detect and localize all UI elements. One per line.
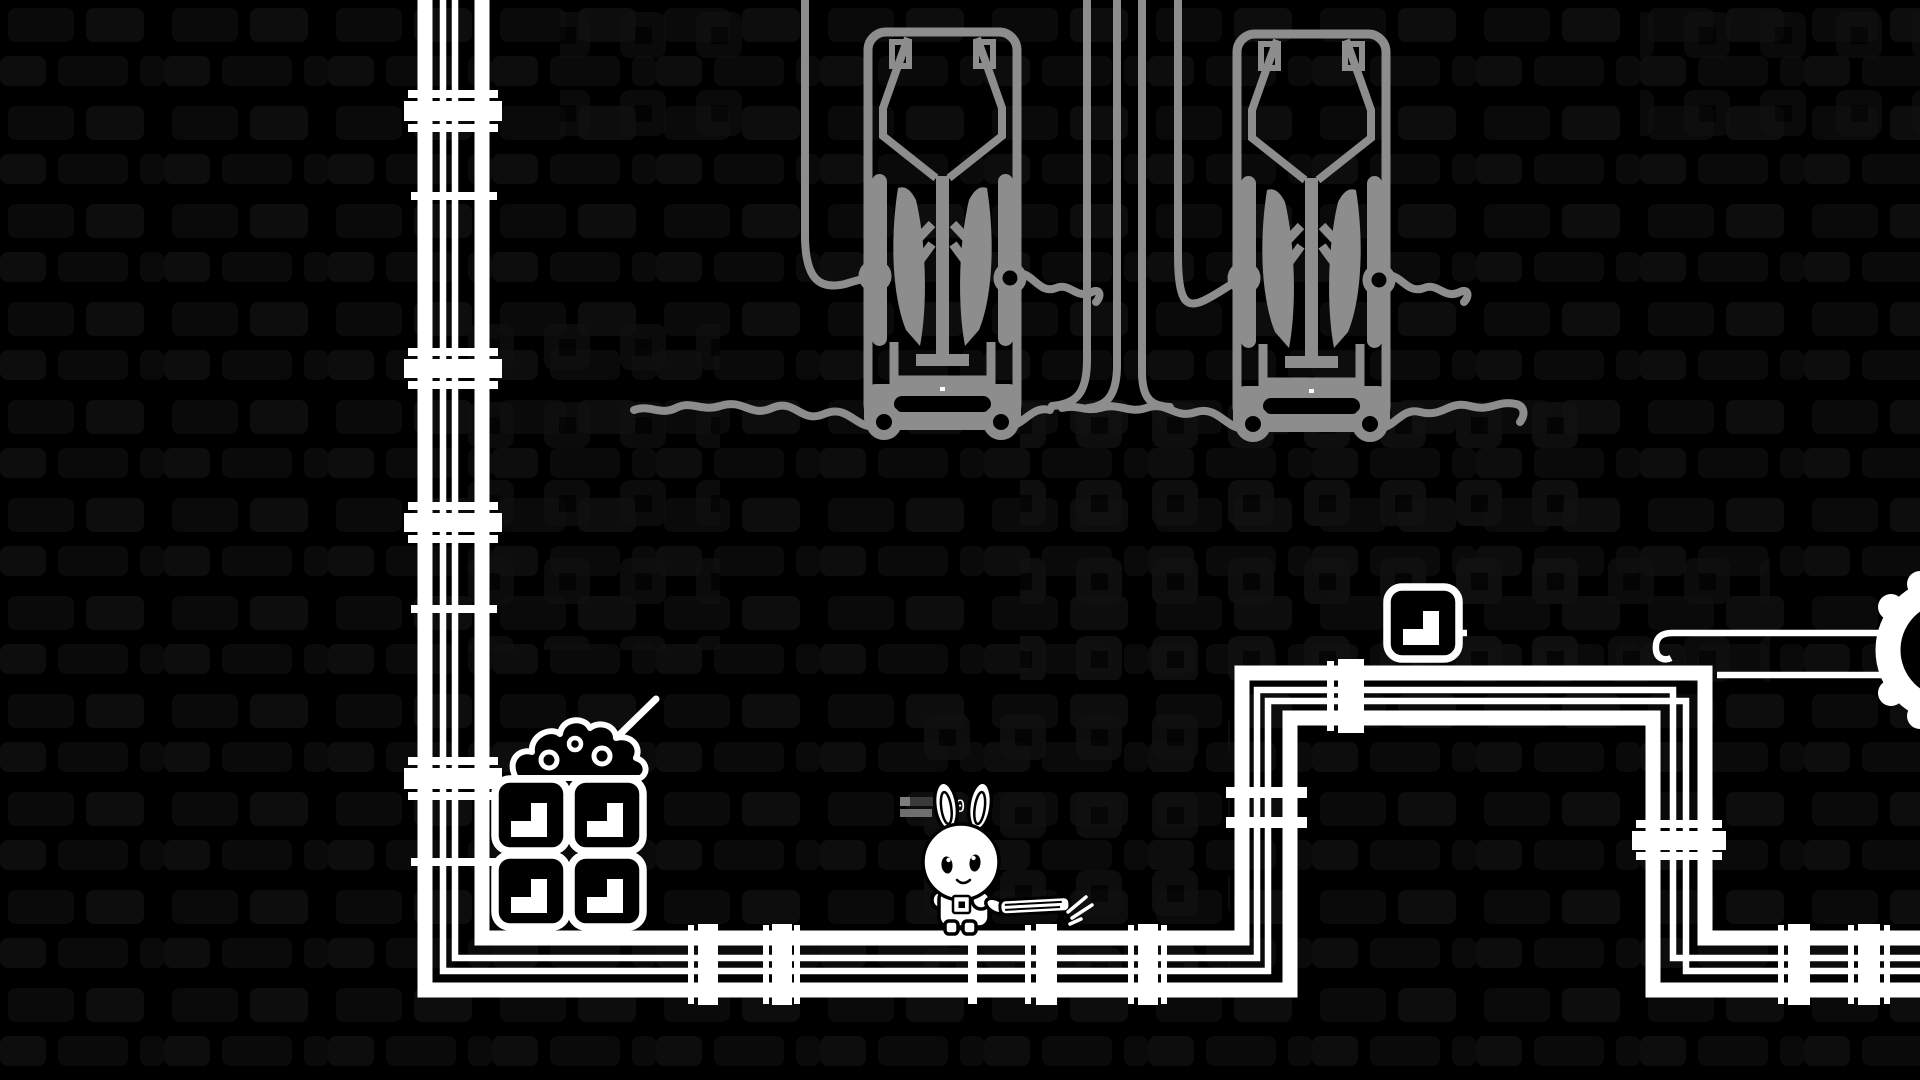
game-viewport[interactable]: 0 — [0, 0, 1920, 1080]
game-scene: 0 — [0, 0, 1920, 1080]
crate-on-upper-pipe[interactable] — [1387, 587, 1459, 659]
held-plank — [1000, 896, 1071, 915]
crate[interactable] — [571, 779, 643, 851]
bunny-foot-left — [945, 921, 958, 934]
bunny-foot-right — [963, 921, 976, 934]
crate[interactable] — [571, 855, 643, 927]
crate[interactable] — [495, 855, 567, 927]
crate[interactable] — [495, 779, 567, 851]
bunny-head — [923, 824, 999, 900]
